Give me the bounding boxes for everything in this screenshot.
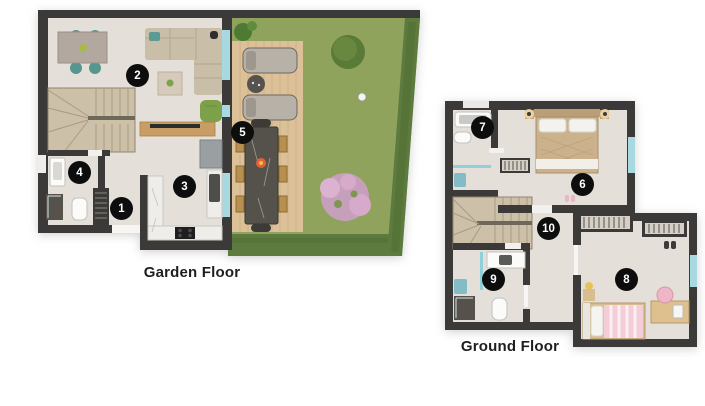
room-marker-6[interactable]: 6 bbox=[571, 173, 594, 196]
ground-floor-label: Ground Floor bbox=[430, 338, 590, 355]
tv-console bbox=[140, 122, 215, 136]
room-marker-10[interactable]: 10 bbox=[537, 217, 560, 240]
hallway-closet bbox=[577, 213, 633, 232]
toilet bbox=[454, 132, 471, 143]
shower bbox=[454, 296, 475, 320]
shoes bbox=[664, 241, 669, 249]
kids-bed bbox=[583, 303, 645, 339]
dresser bbox=[583, 289, 595, 301]
staircase bbox=[48, 88, 135, 152]
fridge bbox=[200, 140, 222, 168]
desk-chair bbox=[657, 287, 673, 303]
door-leaf bbox=[574, 245, 578, 275]
toilet bbox=[72, 198, 87, 220]
ball bbox=[358, 93, 366, 101]
kitchen-sink bbox=[209, 174, 220, 202]
coffee-table bbox=[158, 72, 182, 95]
hedge-bottom bbox=[228, 234, 390, 256]
room-marker-3[interactable]: 3 bbox=[173, 175, 196, 198]
stove bbox=[175, 227, 195, 239]
room-marker-5[interactable]: 5 bbox=[231, 121, 254, 144]
garden-floor-label: Garden Floor bbox=[112, 264, 272, 281]
room-marker-9[interactable]: 9 bbox=[482, 268, 505, 291]
basin bbox=[454, 173, 466, 187]
hall-radiator bbox=[93, 188, 109, 225]
side-table bbox=[247, 75, 265, 93]
room-marker-7[interactable]: 7 bbox=[471, 116, 494, 139]
double-bed bbox=[534, 109, 600, 173]
kids-closet bbox=[642, 220, 687, 237]
room-marker-4[interactable]: 4 bbox=[68, 161, 91, 184]
coat-rack bbox=[500, 158, 530, 173]
room-marker-2[interactable]: 2 bbox=[126, 64, 149, 87]
garden-floor-rendering bbox=[30, 8, 430, 260]
room-marker-8[interactable]: 8 bbox=[615, 268, 638, 291]
shower bbox=[46, 194, 63, 220]
entrance-door bbox=[112, 225, 140, 233]
armchair bbox=[200, 100, 222, 122]
basin bbox=[454, 279, 467, 294]
staircase bbox=[453, 197, 532, 249]
room-marker-1[interactable]: 1 bbox=[110, 197, 133, 220]
toilet bbox=[492, 298, 507, 320]
door-leaf bbox=[524, 285, 528, 307]
floor-plans-page: 1 2 3 4 5 6 7 8 9 10 Garden Floor Ground… bbox=[0, 0, 705, 406]
